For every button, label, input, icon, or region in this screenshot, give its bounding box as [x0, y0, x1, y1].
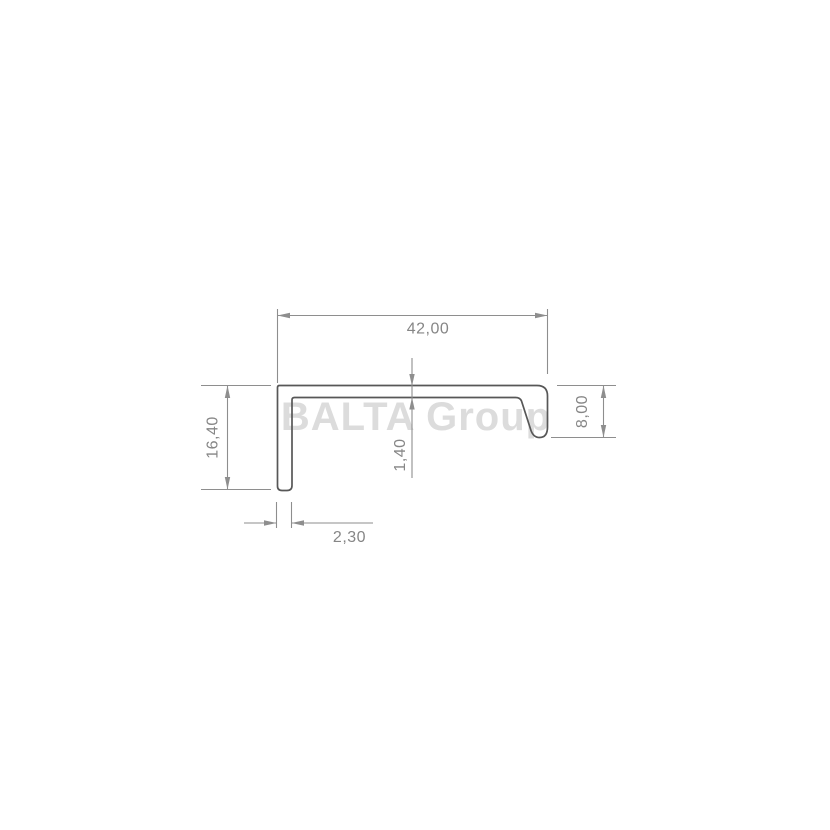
technical-drawing-page: BALTA Group 42,00 16,40 [0, 0, 830, 830]
dimension-height-left: 16,40 [201, 386, 271, 490]
arrowhead-left-icon [292, 520, 305, 525]
dim-label-height-right: 8,00 [574, 395, 591, 428]
dimension-height-right: 8,00 [551, 386, 616, 438]
arrowhead-down-icon [409, 374, 414, 386]
dim-label-thickness-top: 1,40 [392, 438, 409, 471]
arrowhead-down-icon [225, 477, 230, 490]
arrowhead-right-icon [264, 520, 277, 525]
arrowhead-right-icon [535, 313, 548, 318]
dim-label-thickness-leg: 2,30 [333, 529, 366, 546]
arrowhead-up-icon [601, 386, 606, 399]
arrowhead-left-icon [278, 313, 291, 318]
dim-label-width-top: 42,00 [407, 321, 450, 338]
dim-label-height-left: 16,40 [205, 416, 222, 459]
profile-drawing: BALTA Group 42,00 16,40 [0, 0, 830, 830]
watermark-text: BALTA Group [281, 395, 551, 439]
arrowhead-up-icon [225, 386, 230, 399]
arrowhead-down-icon [601, 425, 606, 438]
dimension-thickness-leg: 2,30 [244, 502, 373, 546]
